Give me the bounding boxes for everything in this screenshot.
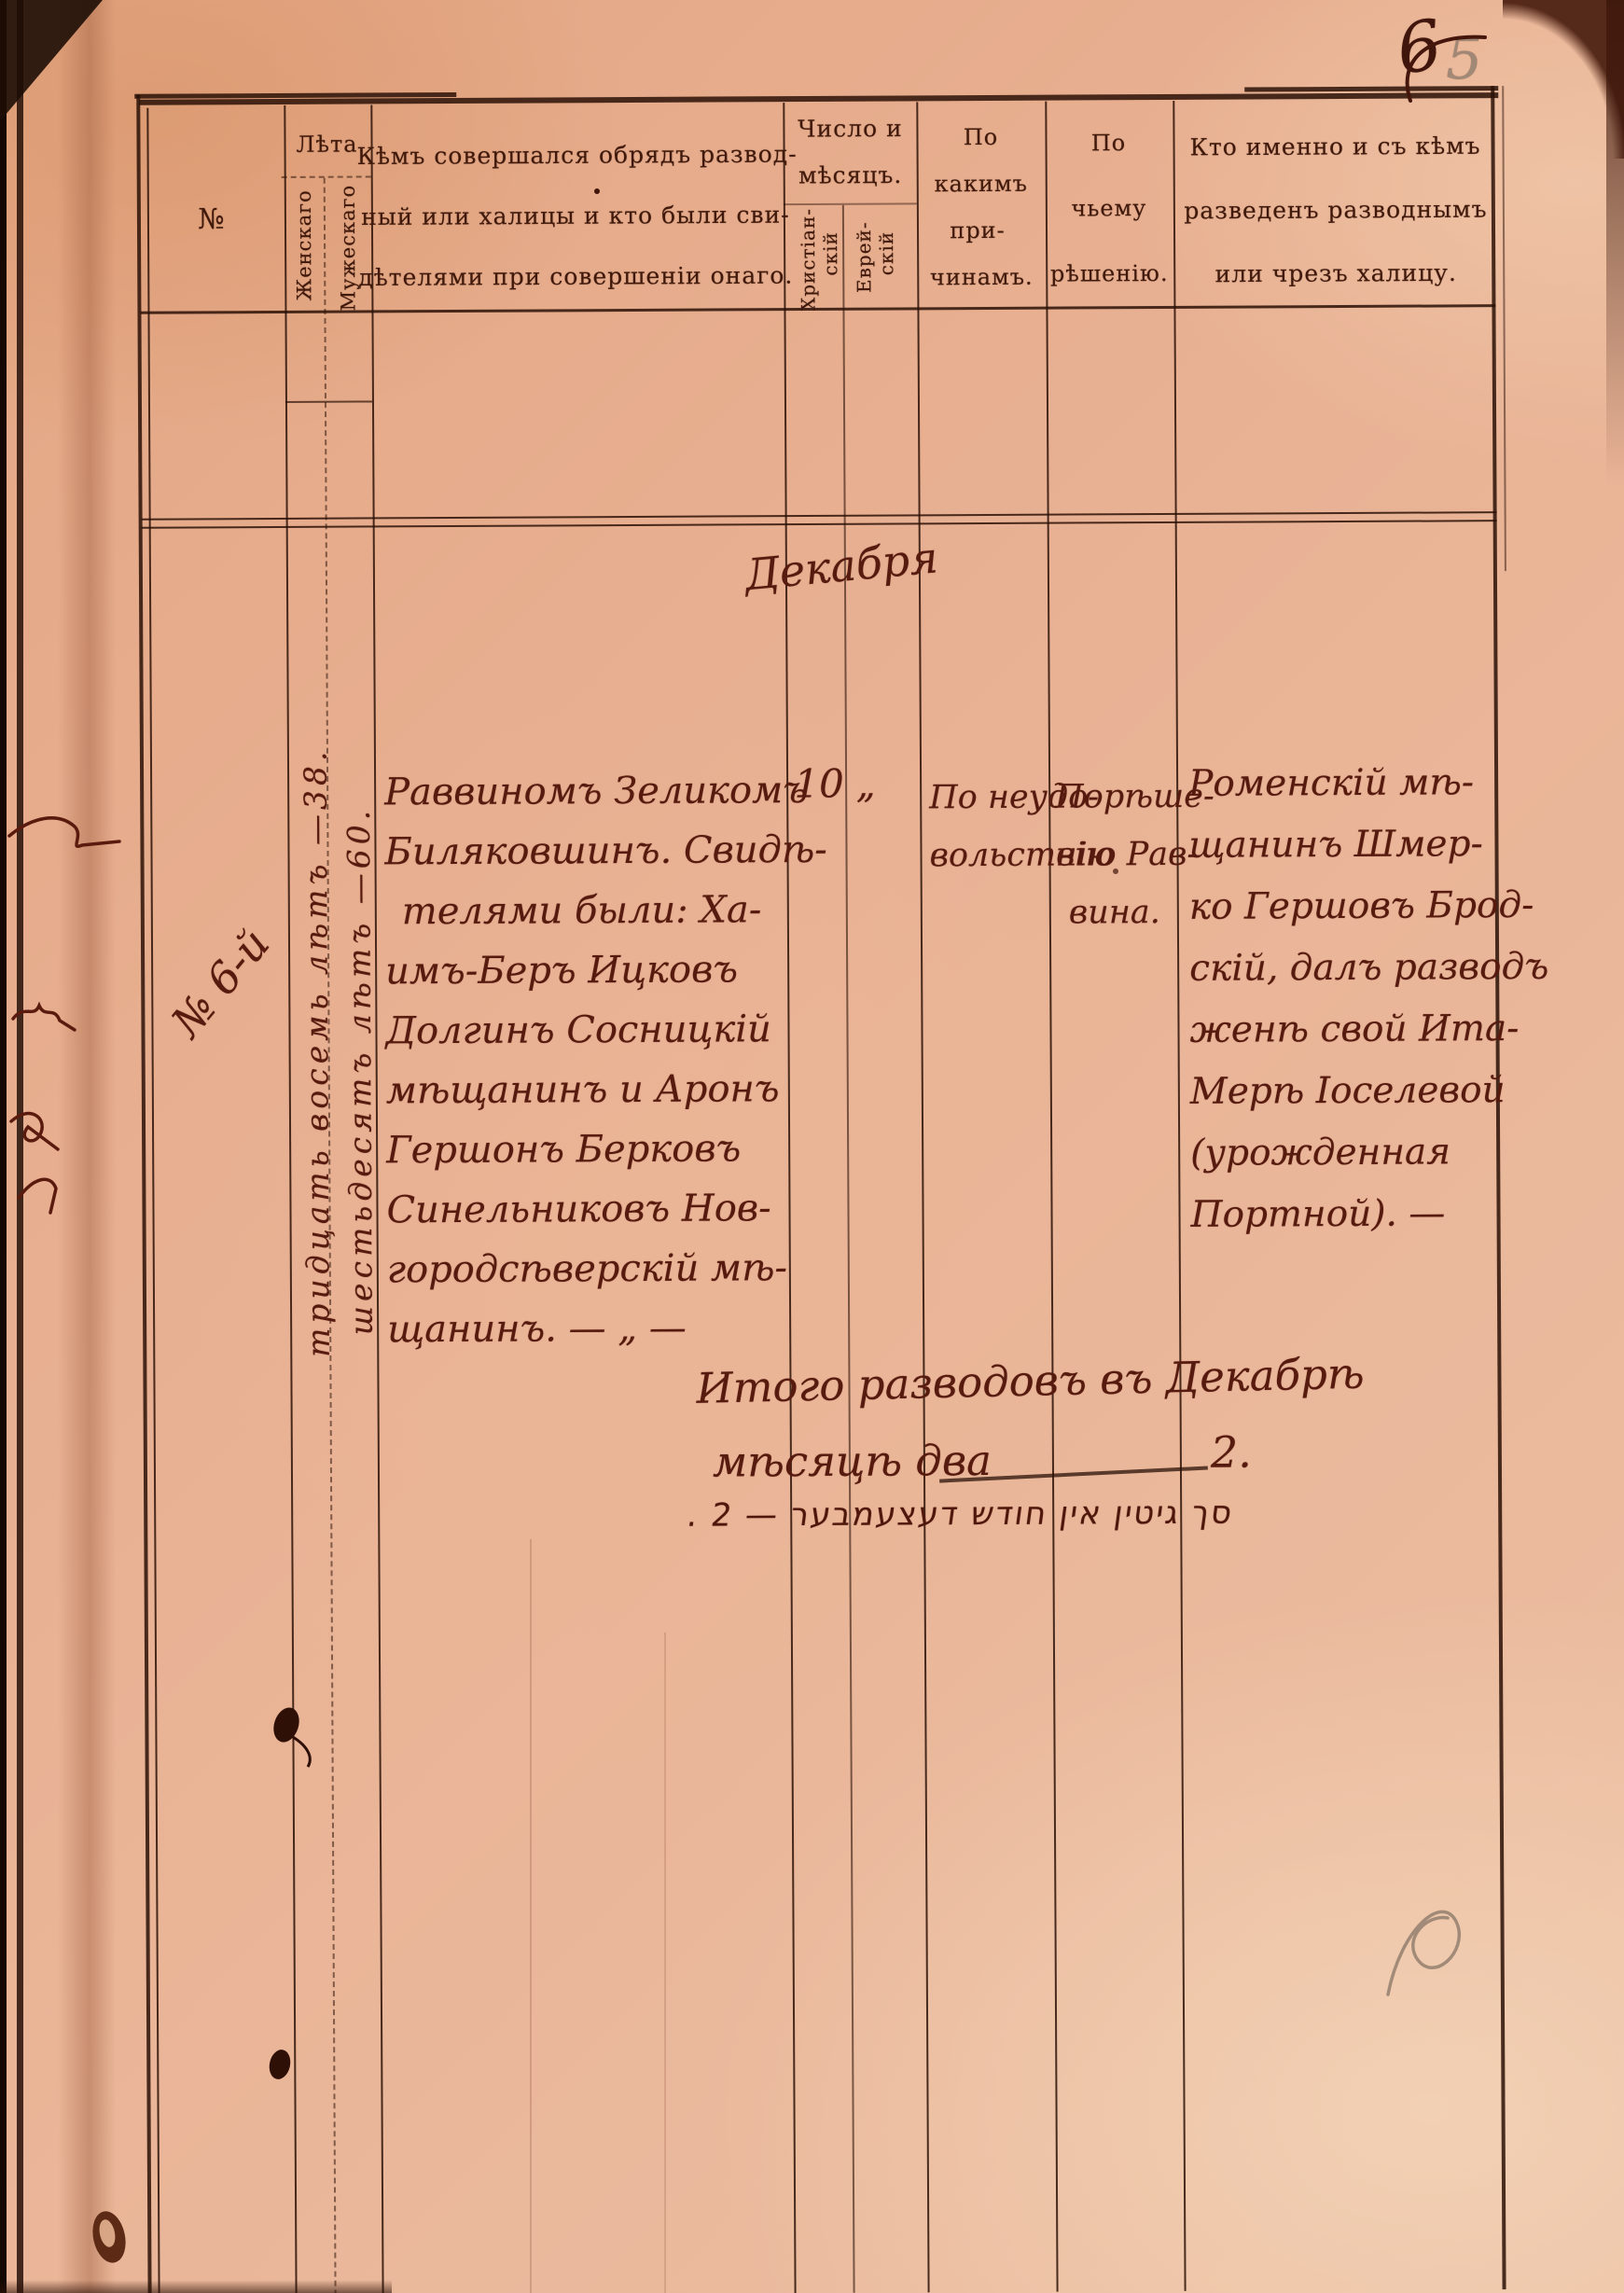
entry-day-jewish-ditto: „ [856,764,876,807]
entry-record-number: № 6-й [161,919,279,1047]
header-who-line2: разведенъ разводнымъ [1184,196,1487,225]
vline-date-reasons [916,102,929,2292]
who-line: женѣ свой Ита- [1189,998,1501,1062]
date-subheader-rule [784,202,917,205]
who-line: (урожденная [1190,1121,1502,1185]
entry-officiant-text: Раввиномъ Зеликомъ Биляковшинъ. Свидѣ- т… [384,760,794,1359]
header-no: № [198,203,226,236]
vline-date-mid [842,205,855,2293]
header-who-line3: или чрезъ халицу. [1215,259,1457,287]
header-decision-line3: рѣшенію. [1050,260,1169,287]
entry-age-female: тридцать восемь лѣтъ —38. [297,747,336,1358]
header-officiant-line1: Кѣмъ совершался обрядъ развод- [356,141,797,170]
header-reasons-line1: По [964,124,999,150]
vline-reasons-decision [1045,102,1058,2292]
entry-month-heading: Декабря [743,532,940,600]
table-border-right-outer [1502,86,1506,571]
officiant-line: мѣщанинъ и Аронъ [386,1059,793,1120]
vline-no-years [284,105,297,2293]
header-date-christian-1: Христіан- [797,208,820,311]
officiant-line: телями были: Ха- [385,880,792,941]
entry-age-male: шестьдесятъ лѣтъ —60. [340,806,380,1336]
officiant-line: Биляковшинъ. Свидѣ- [384,820,791,882]
table-sheet: № Лѣта Женскаго Мужескаго Кѣмъ совершалс… [0,0,1624,2293]
header-decision-line1: По [1091,130,1127,156]
header-date-christian-2: скій [819,231,841,276]
header-reasons-line2: какимъ [935,171,1028,198]
scanned-ledger-page: 6 5 № Лѣта Женскаго Мужескаго Кѣмъ совер… [0,0,1624,2293]
summary-total: 2. [1211,1427,1252,1478]
who-line: Портной). — [1190,1183,1502,1246]
officiant-line: Раввиномъ Зеликомъ [384,760,791,822]
header-date-line1: Число и [798,115,903,143]
header-who-line1: Кто именно и съ кѣмъ [1190,132,1481,161]
who-line: Мерѣ Іоселевой [1190,1060,1502,1123]
vline-decision-who [1173,101,1186,2291]
header-years-male: Мужескаго [337,185,360,312]
entry-day-christian: 10 [794,760,844,806]
body-separator-a [142,511,1497,521]
who-line: Роменскій мѣ- [1188,752,1500,815]
table-border-top-seg-right [1244,86,1498,91]
who-line: скій, далъ разводъ [1189,937,1501,1000]
header-years-female: Женскаго [293,189,316,300]
summary-line1: Итого разводовъ въ Декабрѣ [696,1349,1365,1413]
header-decision-line2: чьему [1071,195,1146,221]
who-line: ко Гершовъ Брод- [1189,875,1501,938]
officiant-line: Долгинъ Сосницкій [385,999,792,1061]
header-date-line2: мѣсяцъ. [798,161,902,189]
no-column-box-rule [285,400,372,402]
officiant-line: Синельниковъ Нов- [386,1178,793,1240]
header-officiant-line3: дѣтелями при совершеніи онаго. [358,262,793,291]
officiant-line: городсѣверскій мѣ- [387,1238,794,1299]
header-date-jewish-2: скій [875,231,897,276]
who-line: щанинъ Шмер- [1188,813,1500,877]
header-officiant-line2: ный или халицы и кто были сви- [361,202,790,230]
officiant-line: Гершонъ Берковъ [386,1119,793,1180]
officiant-line: щанинъ. — „ — [387,1298,794,1359]
years-subheader-rule [282,175,371,178]
officiant-line: имъ-Беръ Ицковъ [385,939,792,1001]
header-date-jewish-1: Еврей- [853,221,875,293]
body-separator-b [142,520,1497,529]
header-reasons-line3: при- [950,217,1006,243]
entry-who-text: Роменскій мѣ- щанинъ Шмер- ко Гершовъ Бр… [1188,752,1503,1246]
header-years-title: Лѣта [296,132,357,158]
summary-hebrew-cursive-note: סך גיטין אין חודש דעצעמבער — 2 . [737,1494,1236,1535]
header-reasons-line4: чинамъ. [930,264,1034,291]
